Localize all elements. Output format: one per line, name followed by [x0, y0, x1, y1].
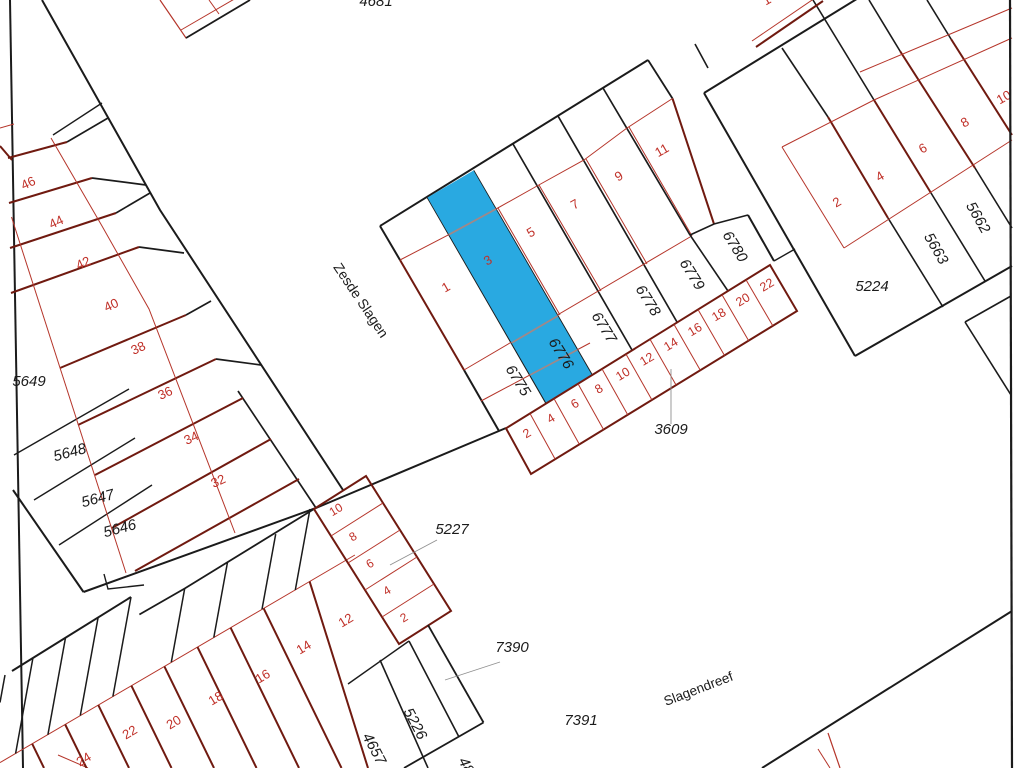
svg-text:2: 2	[397, 610, 410, 626]
svg-text:5646: 5646	[102, 516, 139, 541]
svg-text:18: 18	[206, 688, 226, 708]
svg-text:32: 32	[208, 471, 227, 491]
svg-text:12: 12	[637, 350, 656, 369]
svg-text:48: 48	[455, 755, 478, 768]
svg-text:38: 38	[128, 338, 147, 358]
svg-text:5662: 5662	[962, 199, 994, 237]
svg-text:Zesde Slagen: Zesde Slagen	[330, 260, 392, 341]
svg-text:34: 34	[181, 428, 200, 448]
svg-text:10: 10	[613, 364, 632, 383]
svg-text:8: 8	[592, 381, 605, 397]
svg-text:44: 44	[46, 212, 65, 232]
svg-text:11: 11	[652, 140, 671, 160]
svg-text:40: 40	[101, 295, 120, 315]
svg-text:5649: 5649	[12, 373, 46, 390]
svg-text:5647: 5647	[80, 486, 117, 511]
svg-text:14: 14	[294, 637, 314, 657]
svg-text:5227: 5227	[435, 521, 469, 538]
svg-text:6780: 6780	[719, 228, 751, 266]
svg-text:3609: 3609	[654, 421, 688, 438]
svg-text:4681: 4681	[359, 0, 392, 10]
svg-text:2: 2	[520, 426, 533, 442]
svg-text:8: 8	[346, 529, 359, 545]
svg-text:16: 16	[253, 666, 273, 686]
svg-text:46: 46	[18, 173, 37, 193]
svg-text:5224: 5224	[855, 278, 888, 295]
svg-text:22: 22	[120, 722, 140, 742]
svg-text:8: 8	[958, 114, 972, 131]
svg-text:4: 4	[873, 168, 887, 185]
svg-text:6778: 6778	[632, 282, 664, 320]
svg-text:4657: 4657	[359, 730, 390, 768]
svg-text:5: 5	[524, 224, 538, 241]
svg-text:5226: 5226	[400, 705, 431, 743]
svg-text:6779: 6779	[676, 256, 708, 294]
svg-text:20: 20	[164, 712, 184, 732]
svg-text:22: 22	[757, 275, 776, 294]
svg-text:12: 12	[336, 610, 356, 630]
svg-text:24: 24	[74, 749, 94, 768]
svg-text:6: 6	[916, 140, 930, 157]
svg-text:5648: 5648	[52, 440, 89, 465]
svg-text:14: 14	[661, 335, 680, 354]
svg-text:4: 4	[380, 583, 393, 599]
svg-text:Slagendreef: Slagendreef	[662, 669, 736, 709]
svg-text:6: 6	[363, 556, 376, 572]
svg-text:7391: 7391	[564, 712, 597, 729]
svg-text:2: 2	[830, 194, 844, 211]
svg-text:20: 20	[733, 290, 752, 309]
svg-text:5663: 5663	[920, 230, 952, 268]
svg-text:18: 18	[709, 305, 728, 324]
svg-text:6777: 6777	[588, 309, 620, 347]
svg-text:1: 1	[439, 279, 453, 296]
svg-text:6: 6	[568, 396, 581, 412]
svg-text:9: 9	[612, 168, 626, 185]
svg-text:7390: 7390	[495, 639, 529, 656]
svg-text:14: 14	[760, 0, 780, 8]
svg-text:7: 7	[568, 196, 582, 213]
svg-text:16: 16	[685, 320, 704, 339]
svg-text:4: 4	[544, 411, 557, 427]
